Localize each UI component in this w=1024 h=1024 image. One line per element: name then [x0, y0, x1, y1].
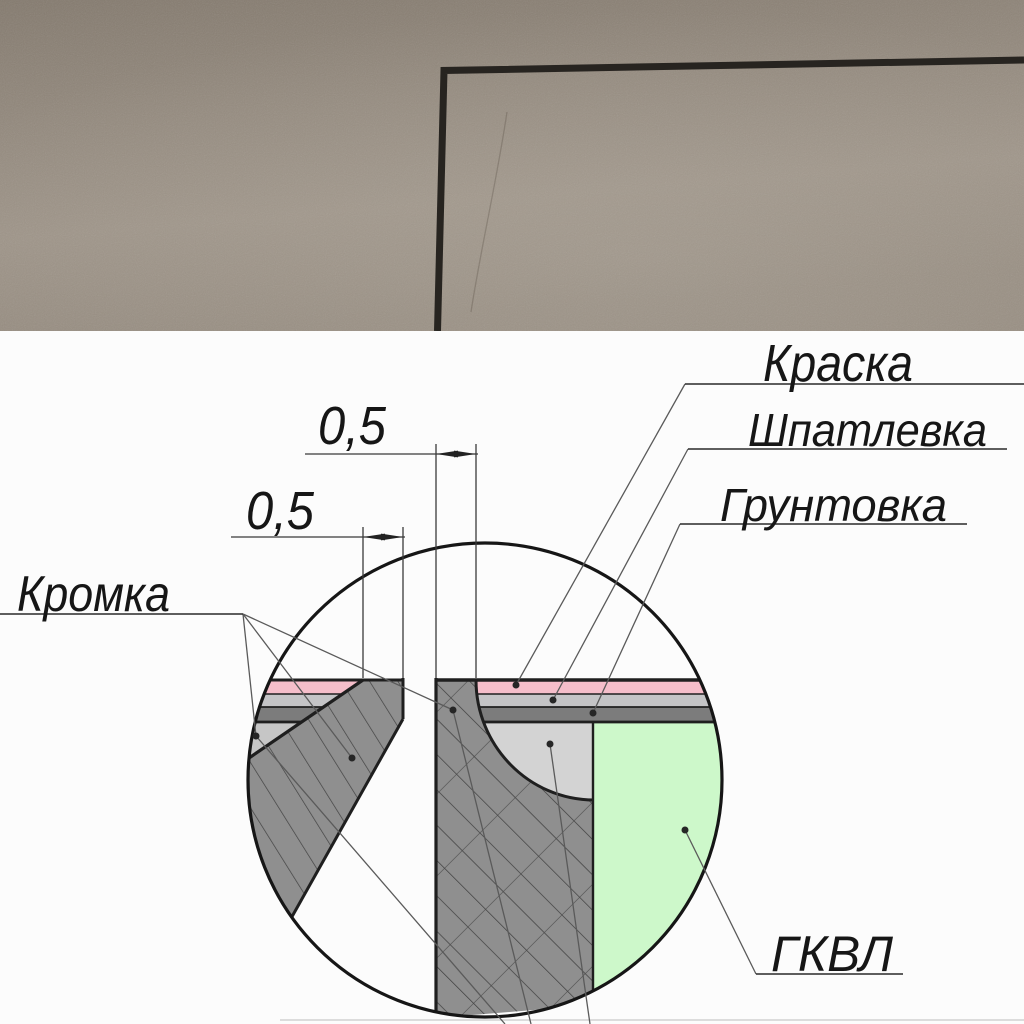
dot-board [682, 827, 689, 834]
dot-edge-left [253, 733, 260, 740]
label-primer: Грунтовка [720, 479, 947, 531]
dot-primer [590, 710, 597, 717]
dot-edge-right [450, 707, 457, 714]
primer-layer-right [479, 707, 716, 722]
screenshot-root: 0,5 0,5 Краска Шпатлевка Грунтовка Кромк… [0, 0, 1024, 1024]
dimension-value-bottom: 0,5 [246, 481, 315, 541]
label-edge: Кромка [17, 566, 170, 622]
label-filler: Шпатлевка [748, 404, 987, 456]
photo-grain [0, 0, 1024, 331]
dimension-value-top: 0,5 [318, 396, 387, 456]
label-paint: Краска [763, 335, 913, 393]
paint-layer-right [476, 680, 712, 694]
dot-paint [513, 682, 520, 689]
dot-filler [550, 697, 557, 704]
dot-putty-fill [547, 741, 554, 748]
dot-edge-board [349, 755, 356, 762]
filler-layer-right [477, 694, 714, 707]
photo-section [0, 0, 1024, 331]
label-board: ГКВЛ [771, 926, 894, 982]
joint-repair-diagram: 0,5 0,5 Краска Шпатлевка Грунтовка Кромк… [0, 0, 1024, 1024]
